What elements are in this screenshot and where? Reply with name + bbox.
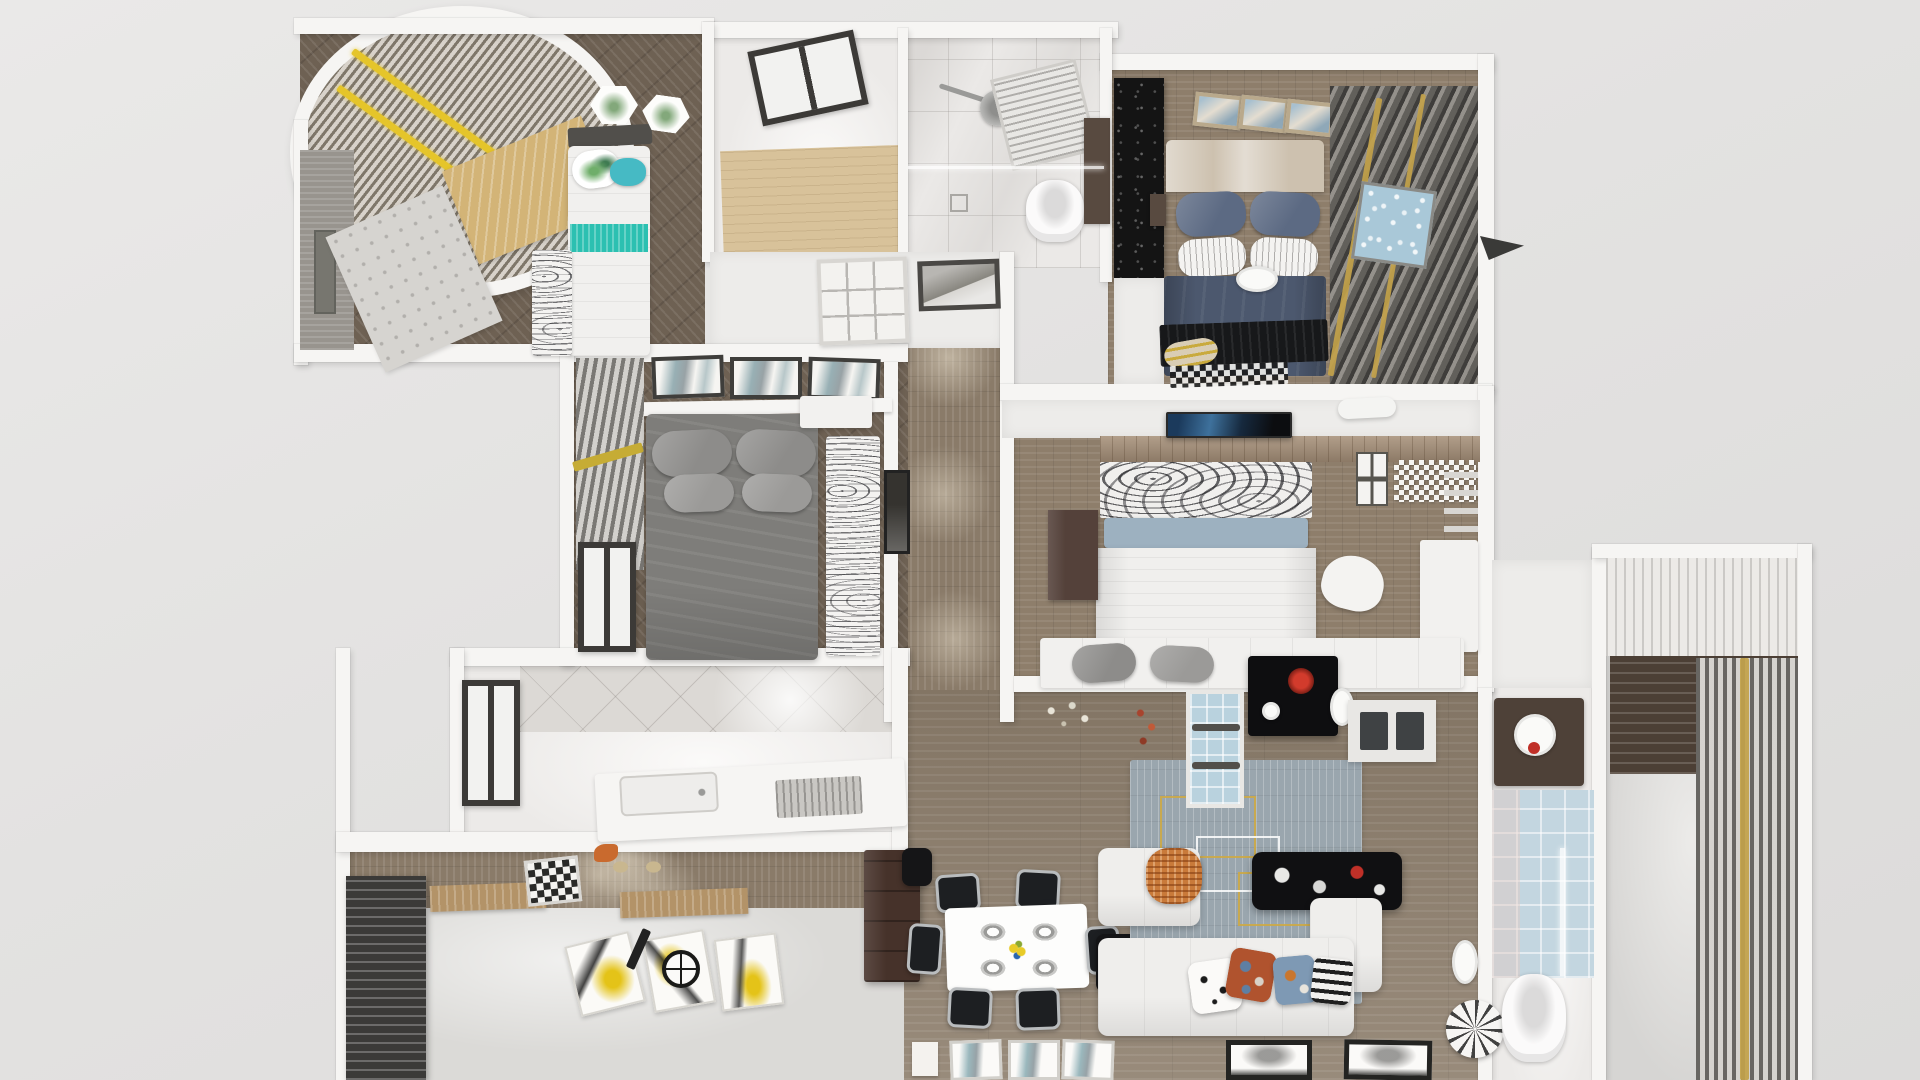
bench-cushion-1	[1071, 642, 1137, 684]
plant-white-flowers	[1026, 690, 1110, 742]
entry-clock	[662, 950, 700, 988]
balcony-upper-band	[1606, 558, 1798, 656]
master-pillow-band	[1104, 518, 1308, 548]
sofa-pillow-dots	[1224, 946, 1278, 1003]
dining-triptych-1	[949, 1039, 1002, 1080]
bed2-pillow-stripe-1	[1177, 236, 1247, 279]
niche-shelf-1	[1192, 724, 1240, 731]
master-marble-headboard	[1100, 462, 1312, 518]
dining-centerpiece	[1000, 934, 1034, 966]
bed3-pillow-2	[735, 428, 817, 478]
rug-marble-bedroom3	[826, 436, 880, 656]
wall-master-top	[1000, 384, 1492, 400]
master-frames-grid	[1356, 452, 1388, 506]
bed2-art-2	[1238, 95, 1289, 134]
wall-corridor-right	[1000, 252, 1014, 722]
bed1-teal-runner	[570, 224, 648, 252]
master-closet-door	[1048, 510, 1098, 600]
bed3-art-1	[651, 355, 724, 399]
apartment-floorplan-render	[0, 0, 1920, 1080]
bed3-pillow-1	[651, 428, 733, 478]
kitchen-niche-blue	[1186, 690, 1244, 808]
bed2-art-3	[1284, 99, 1335, 138]
bath2-red-item	[1528, 742, 1540, 754]
wall-balcony-right	[1798, 544, 1812, 1080]
bed2-nightstand	[1150, 194, 1166, 226]
entry-floor-art-3	[714, 932, 784, 1011]
wall-balcony-top	[1592, 544, 1810, 558]
wall-bedroom3-left	[560, 348, 574, 666]
kitchen-sink	[619, 771, 719, 816]
balcony-gold-stripe	[1740, 658, 1749, 1080]
wardrobe-black-base	[1114, 278, 1164, 384]
bath1-toilet	[1026, 180, 1084, 242]
plant-red-flowers	[1118, 692, 1174, 762]
bed3-art-3	[807, 357, 880, 401]
rug-marble-bedroom1	[532, 250, 572, 356]
tv-white-dot	[1262, 702, 1280, 720]
wall-div-bedroom1-closet	[702, 22, 714, 262]
leaning-disc	[1446, 1000, 1504, 1058]
bath1-drain	[950, 194, 968, 212]
wall-bath2-balcony	[1592, 548, 1606, 1080]
entry-orange-decor	[594, 844, 618, 862]
wall-div-closet-bath	[898, 28, 908, 262]
floor-frame-branch	[1344, 1039, 1433, 1080]
bed3-pillow-3	[663, 473, 734, 513]
book-stack	[912, 1042, 938, 1076]
bed2-foot-mat	[1170, 362, 1289, 388]
hall-art-frame	[917, 259, 1001, 312]
bath2-glass	[1560, 848, 1565, 976]
master-tv	[1166, 412, 1292, 438]
bed2-window-floral	[1351, 181, 1437, 269]
shoe-cabinet	[346, 876, 426, 1080]
bed3-window	[578, 542, 636, 652]
master-ac	[1338, 396, 1397, 419]
media-drawer-2	[1396, 712, 1424, 750]
bath2-pink-tint	[1492, 790, 1520, 978]
floor-frame-tree	[1226, 1040, 1312, 1080]
entry-mirror-triangles	[524, 855, 583, 906]
dining-chair-5	[947, 987, 993, 1029]
tv-cabinet	[1248, 656, 1338, 736]
wardrobe-black	[1114, 78, 1164, 278]
media-drawer-1	[1360, 712, 1388, 750]
kitchen-rack	[775, 776, 863, 818]
living-vase	[1452, 940, 1478, 984]
master-vanity-desk	[1420, 540, 1478, 652]
dining-chair-6	[1015, 987, 1060, 1031]
dining-triptych-3	[1061, 1039, 1114, 1080]
dining-chair-3	[906, 923, 943, 975]
bed2-art-1	[1192, 92, 1243, 131]
sofa-pillow-stripes	[1310, 956, 1355, 1006]
corridor-art	[884, 470, 910, 554]
bath2-toilet	[1502, 974, 1566, 1062]
wall-right-bedroom2	[1478, 54, 1494, 390]
bath1-vanity	[1084, 118, 1110, 224]
niche-shelf-2	[1192, 762, 1240, 769]
wall-top-mid	[704, 22, 1118, 38]
master-shelf	[1444, 462, 1478, 532]
basket-orange	[1146, 848, 1202, 904]
bath1-glass	[908, 166, 1104, 169]
bench-cushion-2	[1149, 644, 1215, 683]
dining-triptych-2	[1008, 1040, 1060, 1080]
bed2-headboard	[1166, 140, 1324, 192]
bed3-pillow-4	[741, 473, 812, 513]
bed2-pillow-navy-1	[1175, 190, 1247, 238]
bed3-dresser	[800, 396, 872, 428]
entry-halfwall-2	[620, 888, 749, 918]
bed3-art-2	[730, 357, 802, 399]
corridor-floor	[896, 308, 1002, 722]
kitchen-window	[462, 680, 520, 806]
wall-top-left	[294, 18, 714, 34]
tv-red-disc	[1288, 668, 1314, 694]
closet-wood-floor	[720, 145, 906, 261]
dining-speaker	[902, 848, 932, 886]
master-accent-wall	[1100, 436, 1480, 462]
bed2-bowl	[1236, 266, 1278, 292]
bed1-teal-cup	[610, 158, 646, 186]
wall-top-right	[1100, 54, 1492, 70]
wall-upper-balcony-face	[1492, 560, 1592, 688]
hall-door	[817, 256, 910, 345]
bed2-pillow-navy-2	[1249, 190, 1321, 238]
